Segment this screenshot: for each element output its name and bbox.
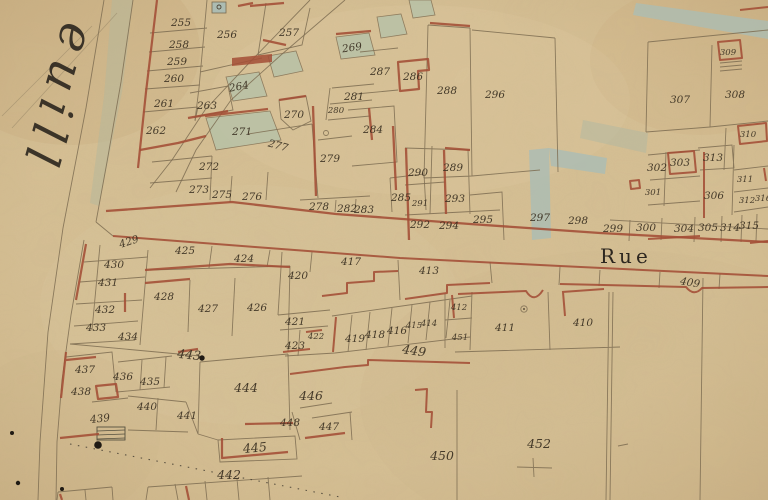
parcel-number: 296 bbox=[484, 89, 505, 101]
parcel-number: 294 bbox=[438, 220, 459, 232]
parcel-number: 314 bbox=[720, 222, 740, 234]
parcel-number: 310 bbox=[740, 130, 757, 140]
parcel-number: 431 bbox=[97, 277, 118, 289]
parcel-number: 436 bbox=[112, 371, 133, 383]
parcel-number: 273 bbox=[188, 184, 209, 196]
parcel-number: 316 bbox=[755, 194, 768, 204]
parcel-number: 309 bbox=[720, 48, 737, 58]
parcel-number: 297 bbox=[529, 212, 550, 224]
parcel-number: 423 bbox=[284, 340, 305, 352]
parcel-number: 293 bbox=[444, 193, 465, 205]
parcel-number: 298 bbox=[567, 215, 588, 227]
parcel-number: 440 bbox=[136, 401, 157, 413]
parcel-number: 434 bbox=[117, 331, 138, 343]
parcel-number: 255 bbox=[170, 17, 191, 29]
parcel-number: 286 bbox=[402, 71, 423, 83]
parcel-number: 283 bbox=[353, 204, 374, 216]
parcel-number: 419 bbox=[344, 333, 365, 345]
parcel-number: 257 bbox=[278, 27, 299, 39]
parcel-number: 443 bbox=[176, 346, 202, 364]
parcel-number: 452 bbox=[526, 436, 551, 451]
parcel-number: 315 bbox=[739, 220, 759, 232]
parcel-number: 290 bbox=[407, 167, 428, 179]
parcel-number: 302 bbox=[647, 162, 667, 174]
parcel-number: 285 bbox=[390, 192, 411, 204]
parcel-number: 280 bbox=[327, 106, 345, 116]
parcel-number: 446 bbox=[298, 388, 323, 403]
parcel-number: 270 bbox=[283, 109, 304, 121]
street-name-rue: Rue bbox=[600, 244, 652, 268]
parcel-number: 306 bbox=[704, 190, 724, 202]
parcel-number: 281 bbox=[343, 91, 364, 103]
parcel-number: 284 bbox=[362, 124, 383, 136]
parcel-number: 424 bbox=[233, 253, 254, 265]
parcel-number: 417 bbox=[340, 256, 361, 268]
parcel-number: 271 bbox=[231, 126, 252, 138]
parcel-number: 418 bbox=[364, 329, 385, 341]
parcel-number: 415 bbox=[405, 321, 422, 331]
parcel-number: 412 bbox=[450, 303, 467, 313]
map-canvas: 2552562572582592602612622632642692702712… bbox=[0, 0, 768, 500]
parcel-number: 301 bbox=[645, 188, 661, 198]
parcel-number: 307 bbox=[670, 94, 690, 106]
parcel-number: 441 bbox=[176, 410, 197, 422]
parcel-number: 439 bbox=[88, 412, 110, 426]
parcel-number: 421 bbox=[284, 316, 305, 328]
parcel-number: 426 bbox=[246, 302, 267, 314]
parcel-number: 276 bbox=[241, 191, 262, 203]
parcel-number: 414 bbox=[420, 319, 437, 329]
parcel-number: 427 bbox=[197, 303, 218, 315]
parcel-number: 425 bbox=[174, 245, 195, 257]
parcel-number: 447 bbox=[318, 421, 339, 433]
parcel-number: 258 bbox=[168, 39, 189, 51]
parcel-number: 311 bbox=[737, 175, 753, 185]
parcel-number: 448 bbox=[279, 417, 300, 429]
parcel-number: 312 bbox=[739, 196, 755, 206]
parcel-number: 303 bbox=[670, 157, 690, 169]
parcel-number: 435 bbox=[139, 376, 160, 388]
parcel-number: 292 bbox=[409, 219, 430, 231]
parcel-number: 275 bbox=[211, 189, 232, 201]
parcel-number: 259 bbox=[166, 56, 187, 68]
parcel-number: 279 bbox=[319, 153, 340, 165]
parcel-number: 272 bbox=[198, 161, 219, 173]
parcel-number: 313 bbox=[703, 152, 723, 164]
parcel-number: 295 bbox=[472, 214, 493, 226]
parcel-number: 300 bbox=[636, 222, 656, 234]
teal-building-top bbox=[212, 2, 226, 13]
parcel-number: 420 bbox=[287, 270, 308, 282]
parcel-number: 256 bbox=[216, 29, 237, 41]
parcel-number: 299 bbox=[602, 223, 623, 235]
parcel-number: 304 bbox=[674, 223, 694, 235]
parcel-number: 260 bbox=[163, 73, 184, 85]
parcel-number: 261 bbox=[153, 98, 174, 110]
parcel-number: 291 bbox=[411, 199, 428, 209]
parcel-number: 442 bbox=[216, 467, 241, 482]
cadastral-map-sheet: 2552562572582592602612622632642692702712… bbox=[0, 0, 768, 500]
parcel-number: 450 bbox=[429, 448, 454, 463]
parcel-number: 430 bbox=[103, 259, 124, 271]
parcel-number: 445 bbox=[241, 439, 267, 456]
parcel-number: 287 bbox=[369, 66, 390, 78]
parcel-number: 451 bbox=[451, 333, 468, 343]
parcel-number: 432 bbox=[94, 304, 115, 316]
parcel-number: 263 bbox=[196, 100, 217, 112]
parcel-number: 410 bbox=[572, 317, 593, 329]
parcel-number: 278 bbox=[308, 201, 329, 213]
parcel-number: 422 bbox=[307, 332, 324, 342]
parcel-number: 444 bbox=[233, 380, 258, 395]
parcel-number: 308 bbox=[725, 89, 745, 101]
parcel-number: 438 bbox=[70, 386, 91, 398]
parcel-number: 305 bbox=[698, 222, 718, 234]
parcel-number: 413 bbox=[418, 265, 439, 277]
parcel-number: 289 bbox=[442, 162, 463, 174]
parcel-number: 262 bbox=[145, 125, 166, 137]
parcel-number: 411 bbox=[494, 322, 515, 334]
parcel-number: 416 bbox=[386, 325, 407, 337]
parcel-number: 433 bbox=[85, 322, 106, 334]
parcel-number: 288 bbox=[436, 85, 457, 97]
parcel-number: 437 bbox=[74, 364, 95, 376]
teal-strip-vertical bbox=[529, 148, 551, 240]
parcel-number: 428 bbox=[153, 291, 174, 303]
